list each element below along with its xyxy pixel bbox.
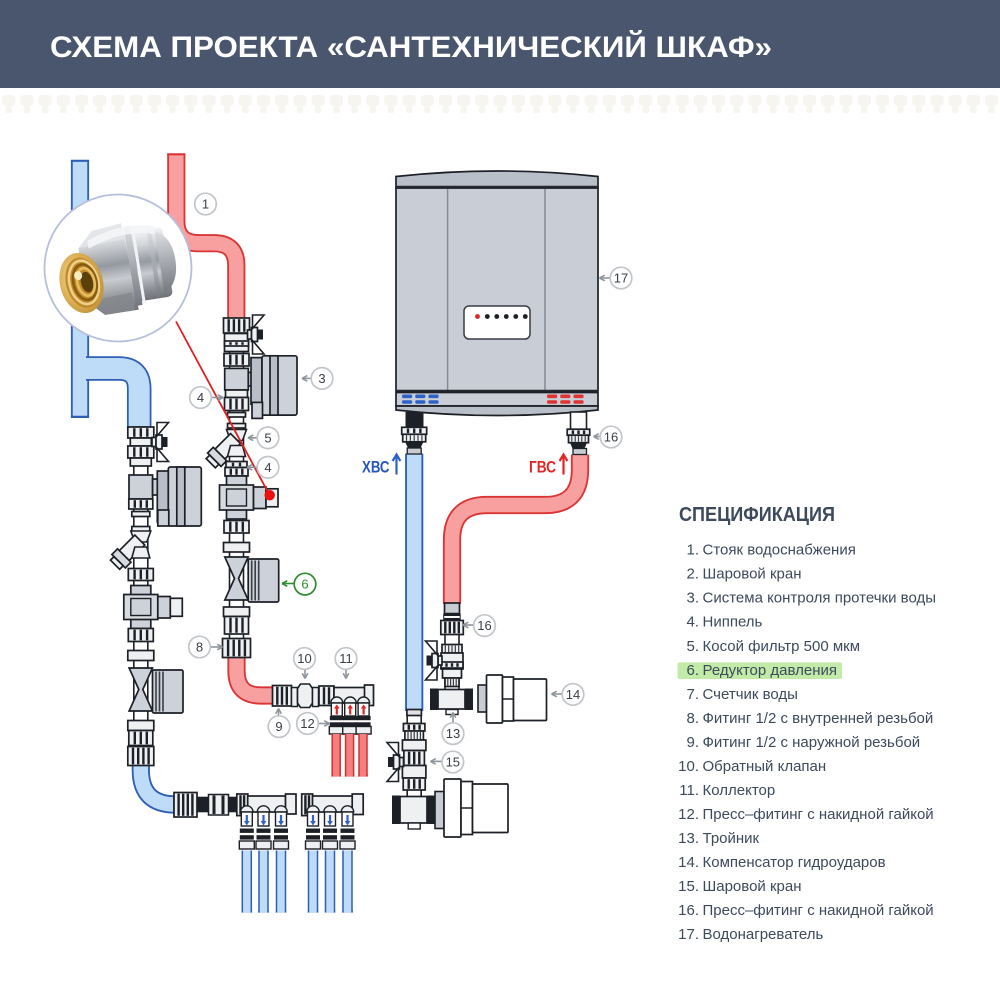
svg-text:ХВС: ХВС <box>362 458 390 477</box>
svg-text:9: 9 <box>275 719 282 734</box>
svg-text:ГВС: ГВС <box>529 458 556 477</box>
svg-text:12: 12 <box>300 716 314 731</box>
svg-text:3: 3 <box>318 371 325 386</box>
svg-text:Стояк водоснабжения: Стояк водоснабжения <box>703 542 856 559</box>
svg-text:СПЕЦИФИКАЦИЯ: СПЕЦИФИКАЦИЯ <box>679 504 835 526</box>
svg-text:14: 14 <box>566 687 580 702</box>
svg-text:15: 15 <box>446 755 460 770</box>
svg-text:8: 8 <box>196 640 203 655</box>
svg-text:1: 1 <box>202 197 209 212</box>
svg-text:6.: 6. <box>686 662 699 679</box>
svg-text:10.: 10. <box>678 758 699 775</box>
svg-text:Пресс–фитинг с накидной гайкой: Пресс–фитинг с накидной гайкой <box>703 806 934 823</box>
svg-text:Фитинг 1/2 с внутренней резьбо: Фитинг 1/2 с внутренней резьбой <box>703 710 934 727</box>
svg-text:5: 5 <box>264 430 271 445</box>
svg-text:Ниппель: Ниппель <box>703 614 763 631</box>
svg-text:Шаровой кран: Шаровой кран <box>703 566 802 583</box>
svg-text:10: 10 <box>297 651 311 666</box>
svg-text:11: 11 <box>339 651 353 666</box>
svg-text:17.: 17. <box>678 926 699 943</box>
svg-text:Тройник: Тройник <box>703 830 760 847</box>
svg-text:15.: 15. <box>678 878 699 895</box>
svg-text:Обратный клапан: Обратный клапан <box>703 758 827 775</box>
svg-text:Счетчик воды: Счетчик воды <box>703 686 798 703</box>
svg-text:4.: 4. <box>686 614 699 631</box>
svg-text:6: 6 <box>301 577 308 592</box>
svg-text:Косой фильтр 500 мкм: Косой фильтр 500 мкм <box>703 638 861 655</box>
svg-text:5.: 5. <box>686 638 699 655</box>
svg-text:СХЕМА ПРОЕКТА «САНТЕХНИЧЕСКИЙ: СХЕМА ПРОЕКТА «САНТЕХНИЧЕСКИЙ ШКАФ» <box>50 30 772 64</box>
svg-text:13.: 13. <box>678 830 699 847</box>
svg-text:Пресс–фитинг с накидной гайкой: Пресс–фитинг с накидной гайкой <box>703 902 934 919</box>
svg-text:3.: 3. <box>686 590 699 607</box>
svg-text:9.: 9. <box>686 734 699 751</box>
svg-text:11.: 11. <box>679 782 699 799</box>
svg-text:8.: 8. <box>686 710 699 727</box>
svg-text:Фитинг 1/2 с наружной резьбой: Фитинг 1/2 с наружной резьбой <box>703 734 921 751</box>
svg-text:16.: 16. <box>678 902 699 919</box>
svg-text:Коллектор: Коллектор <box>703 782 776 799</box>
svg-text:4: 4 <box>264 460 271 475</box>
svg-text:13: 13 <box>446 726 460 741</box>
svg-text:Компенсатор гидроударов: Компенсатор гидроударов <box>703 854 886 871</box>
svg-text:16: 16 <box>604 430 618 445</box>
svg-text:16: 16 <box>477 618 491 633</box>
svg-text:7.: 7. <box>686 686 699 703</box>
svg-text:2.: 2. <box>686 566 699 583</box>
svg-text:14.: 14. <box>678 854 699 871</box>
svg-text:12.: 12. <box>678 806 699 823</box>
svg-text:Водонагреватель: Водонагреватель <box>703 926 824 943</box>
svg-text:1.: 1. <box>686 542 699 559</box>
svg-text:17: 17 <box>614 271 628 286</box>
svg-text:Шаровой кран: Шаровой кран <box>703 878 802 895</box>
svg-text:4: 4 <box>197 390 204 405</box>
svg-text:Система контроля протечки воды: Система контроля протечки воды <box>703 590 937 607</box>
svg-text:Редуктор давления: Редуктор давления <box>703 662 838 679</box>
